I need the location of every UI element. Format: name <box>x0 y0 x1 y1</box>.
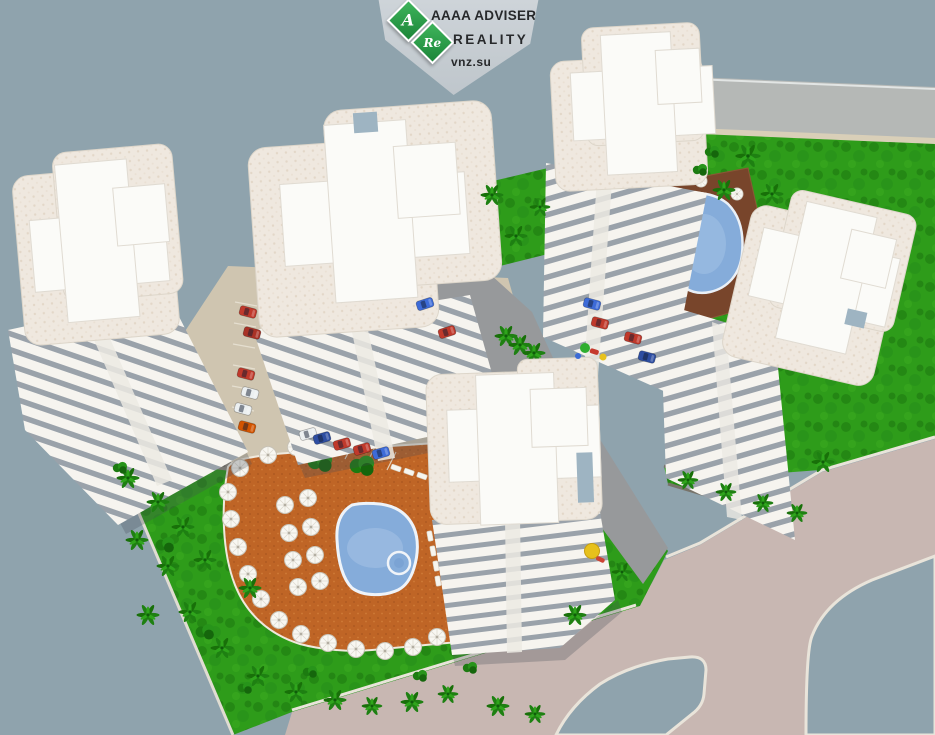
umbrella-icon <box>260 447 277 464</box>
umbrella-icon <box>348 641 365 658</box>
watermark-division-name: REALITY <box>453 32 528 47</box>
umbrella-icon <box>300 490 317 507</box>
logo-letter-a: A <box>402 12 414 28</box>
umbrella-icon <box>290 579 307 596</box>
tower-5 <box>425 357 622 666</box>
aerial-render-scene: A Re AAAA ADVISER REALITY vnz.su <box>0 0 935 735</box>
umbrella-icon <box>303 519 320 536</box>
umbrella-icon <box>405 639 422 656</box>
umbrella-icon <box>281 525 298 542</box>
watermark-company-name: AAAA ADVISER <box>431 8 536 23</box>
render-canvas <box>0 0 935 735</box>
umbrella-icon <box>285 552 302 569</box>
tower-5-core-stripe <box>505 517 522 653</box>
umbrella-icon <box>271 612 288 629</box>
playground-carousel <box>585 544 600 559</box>
umbrella-icon <box>223 511 240 528</box>
umbrella-icon <box>277 497 294 514</box>
spa-pool-center <box>394 558 404 568</box>
umbrella-icon <box>429 629 446 646</box>
main-pool <box>337 503 418 594</box>
umbrella-icon <box>307 547 324 564</box>
playground-toy <box>575 353 581 359</box>
tower-5-skylight <box>576 452 594 503</box>
umbrella-icon <box>377 643 394 660</box>
umbrella-icon <box>293 626 310 643</box>
tower-2-skylight <box>353 112 378 134</box>
umbrella-icon <box>220 484 237 501</box>
umbrella-icon <box>312 573 329 590</box>
umbrella-icon <box>230 539 247 556</box>
tower-5-roof <box>425 357 603 527</box>
playground-dome <box>580 343 590 353</box>
umbrella-icon <box>320 635 337 652</box>
logo-letter-re: Re <box>424 36 442 48</box>
watermark-website: vnz.su <box>451 55 491 69</box>
playground-toy <box>600 354 607 361</box>
